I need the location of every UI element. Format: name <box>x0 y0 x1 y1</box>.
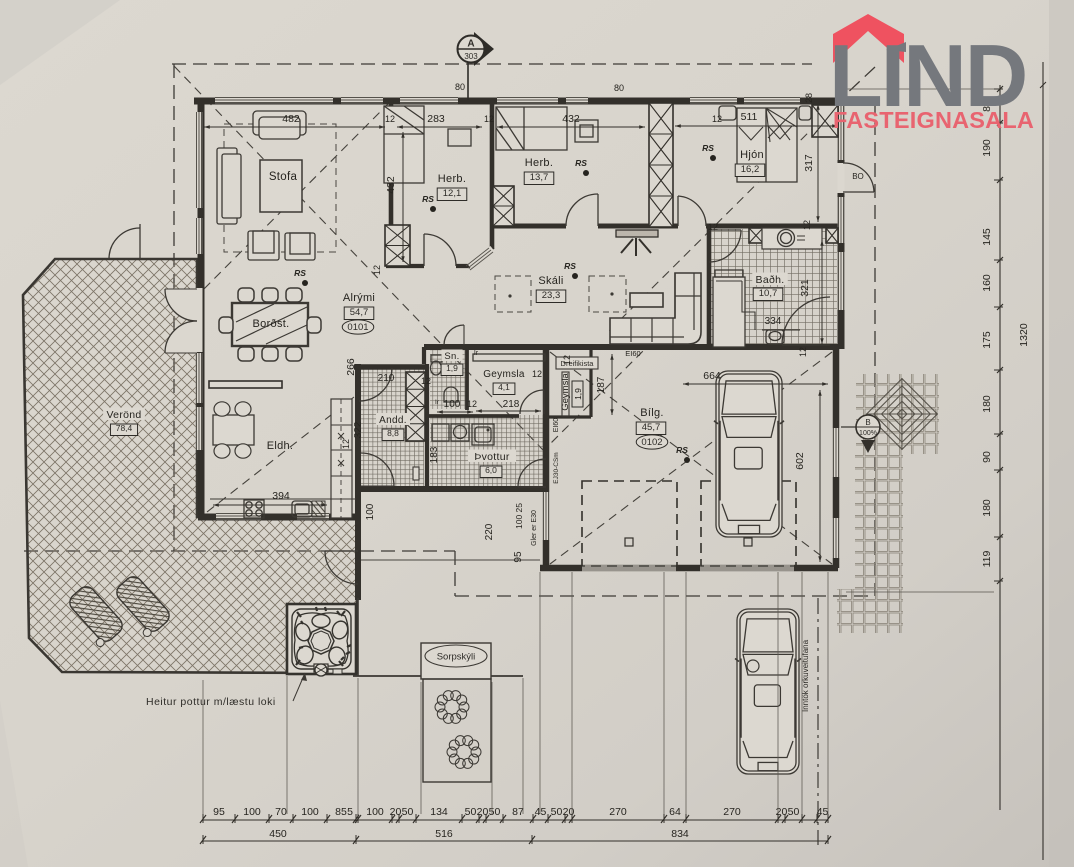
svg-text:190: 190 <box>981 139 993 157</box>
svg-text:321: 321 <box>799 279 811 297</box>
svg-text:Herb.: Herb. <box>525 157 553 169</box>
svg-text:180: 180 <box>981 499 993 517</box>
svg-text:Herb.: Herb. <box>438 173 466 185</box>
svg-text:12: 12 <box>421 376 431 386</box>
svg-text:100: 100 <box>243 806 261 818</box>
svg-text:RS: RS <box>564 261 576 271</box>
svg-text:95: 95 <box>513 551 524 563</box>
svg-text:303: 303 <box>464 52 478 61</box>
svg-text:Ir: Ir <box>474 350 479 357</box>
svg-text:RS: RS <box>702 143 714 153</box>
svg-text:EJ30-CSm: EJ30-CSm <box>553 452 560 483</box>
svg-text:50: 50 <box>551 806 563 818</box>
svg-text:5: 5 <box>347 806 353 818</box>
svg-text:A: A <box>467 39 474 50</box>
svg-text:12: 12 <box>341 439 351 449</box>
svg-text:0101: 0101 <box>347 322 368 333</box>
svg-text:334: 334 <box>765 316 782 327</box>
svg-text:95: 95 <box>213 806 225 818</box>
svg-text:45: 45 <box>535 806 547 818</box>
svg-text:183: 183 <box>429 446 440 463</box>
svg-text:283: 283 <box>427 113 445 125</box>
svg-text:Skáli: Skáli <box>538 275 563 287</box>
svg-text:RS: RS <box>676 445 688 455</box>
svg-text:B: B <box>865 418 870 427</box>
svg-text:Alrými: Alrými <box>343 292 375 304</box>
svg-text:RS: RS <box>422 194 434 204</box>
svg-text:12: 12 <box>372 265 382 275</box>
svg-text:20: 20 <box>477 806 489 818</box>
svg-text:50: 50 <box>465 806 477 818</box>
svg-text:12: 12 <box>712 114 722 124</box>
svg-text:175: 175 <box>981 331 993 349</box>
svg-text:EI60: EI60 <box>553 418 560 433</box>
svg-text:13,7: 13,7 <box>530 172 549 183</box>
svg-text:12: 12 <box>532 369 542 379</box>
svg-text:4,1: 4,1 <box>498 382 510 392</box>
svg-text:218: 218 <box>503 399 520 410</box>
svg-text:1,9: 1,9 <box>573 388 583 400</box>
svg-text:100%: 100% <box>859 430 877 437</box>
svg-text:Verönd: Verönd <box>106 409 141 421</box>
svg-text:322: 322 <box>353 421 364 438</box>
svg-text:432: 432 <box>385 176 397 194</box>
svg-text:1,9: 1,9 <box>446 363 458 373</box>
svg-text:482: 482 <box>282 113 300 125</box>
svg-text:160: 160 <box>981 274 993 292</box>
svg-text:Borðst.: Borðst. <box>253 318 290 330</box>
svg-text:Geymsla: Geymsla <box>560 373 571 411</box>
svg-text:64: 64 <box>669 806 681 818</box>
svg-text:50: 50 <box>402 806 414 818</box>
svg-text:602: 602 <box>794 452 806 470</box>
svg-text:90: 90 <box>981 451 993 463</box>
svg-text:23,3: 23,3 <box>542 290 561 301</box>
svg-text:Sn.: Sn. <box>444 351 459 362</box>
svg-text:Baðh.: Baðh. <box>756 274 785 286</box>
svg-text:664: 664 <box>703 370 721 382</box>
svg-text:45,7: 45,7 <box>642 422 661 433</box>
svg-text:FASTEIGNASALA: FASTEIGNASALA <box>833 107 1034 133</box>
svg-text:87: 87 <box>512 806 524 818</box>
svg-text:145: 145 <box>981 228 993 246</box>
svg-text:78,4: 78,4 <box>116 423 133 433</box>
svg-text:100: 100 <box>444 399 461 410</box>
svg-text:RS: RS <box>294 268 306 278</box>
svg-text:12: 12 <box>562 355 572 365</box>
svg-text:80: 80 <box>614 83 624 93</box>
svg-text:Bílg.: Bílg. <box>640 407 664 419</box>
svg-text:70: 70 <box>275 806 287 818</box>
svg-text:12: 12 <box>798 347 808 357</box>
svg-text:16,2: 16,2 <box>741 164 760 175</box>
svg-text:45: 45 <box>817 806 829 818</box>
svg-text:187: 187 <box>596 376 607 393</box>
svg-text:RS: RS <box>575 158 587 168</box>
svg-text:210: 210 <box>378 373 395 384</box>
svg-text:100 25: 100 25 <box>514 503 524 529</box>
svg-text:50: 50 <box>489 806 501 818</box>
svg-text:20: 20 <box>563 806 575 818</box>
svg-text:Gler er E30: Gler er E30 <box>531 510 538 546</box>
svg-text:100: 100 <box>301 806 319 818</box>
svg-text:8,8: 8,8 <box>387 428 399 438</box>
svg-text:270: 270 <box>609 806 627 818</box>
svg-text:Sorpskýli: Sorpskýli <box>437 652 476 663</box>
svg-text:50: 50 <box>788 806 800 818</box>
svg-text:12: 12 <box>708 222 718 232</box>
svg-text:12: 12 <box>467 399 477 409</box>
svg-text:432: 432 <box>562 113 580 125</box>
svg-text:80: 80 <box>455 82 465 92</box>
svg-text:10,7: 10,7 <box>759 288 778 299</box>
svg-text:12,1: 12,1 <box>443 188 462 199</box>
svg-text:Stofa: Stofa <box>269 171 298 183</box>
svg-text:270: 270 <box>723 806 741 818</box>
svg-text:220: 220 <box>484 523 495 540</box>
svg-text:20: 20 <box>776 806 788 818</box>
svg-text:834: 834 <box>671 828 689 840</box>
svg-text:Heitur pottur m/læstu loki: Heitur pottur m/læstu loki <box>146 696 276 708</box>
svg-text:BO: BO <box>852 172 864 181</box>
svg-text:12: 12 <box>802 220 812 230</box>
svg-text:0102: 0102 <box>641 437 662 448</box>
svg-text:100: 100 <box>366 806 384 818</box>
svg-text:20: 20 <box>390 806 402 818</box>
svg-text:119: 119 <box>981 550 993 567</box>
svg-text:450: 450 <box>269 828 287 840</box>
svg-text:1320: 1320 <box>1018 323 1030 347</box>
svg-text:12: 12 <box>484 114 494 124</box>
svg-text:134: 134 <box>430 806 448 818</box>
svg-text:266: 266 <box>345 358 357 376</box>
svg-text:28: 28 <box>804 93 814 103</box>
svg-text:54,7: 54,7 <box>350 307 369 318</box>
svg-text:180: 180 <box>981 395 993 413</box>
svg-text:Geymsla: Geymsla <box>483 369 525 380</box>
svg-text:100: 100 <box>365 503 376 520</box>
svg-text:85: 85 <box>335 806 347 818</box>
svg-text:6,0: 6,0 <box>485 465 497 475</box>
svg-text:394: 394 <box>272 490 290 502</box>
svg-text:Þvottur: Þvottur <box>474 451 510 463</box>
svg-text:516: 516 <box>435 828 453 840</box>
svg-text:EI60: EI60 <box>625 349 640 358</box>
svg-text:Eldh.: Eldh. <box>267 440 294 452</box>
svg-text:511: 511 <box>741 111 758 123</box>
svg-text:12: 12 <box>385 114 395 124</box>
svg-text:Hjón: Hjón <box>740 149 764 161</box>
svg-text:317: 317 <box>803 154 815 172</box>
svg-text:Andd.: Andd. <box>379 415 407 426</box>
